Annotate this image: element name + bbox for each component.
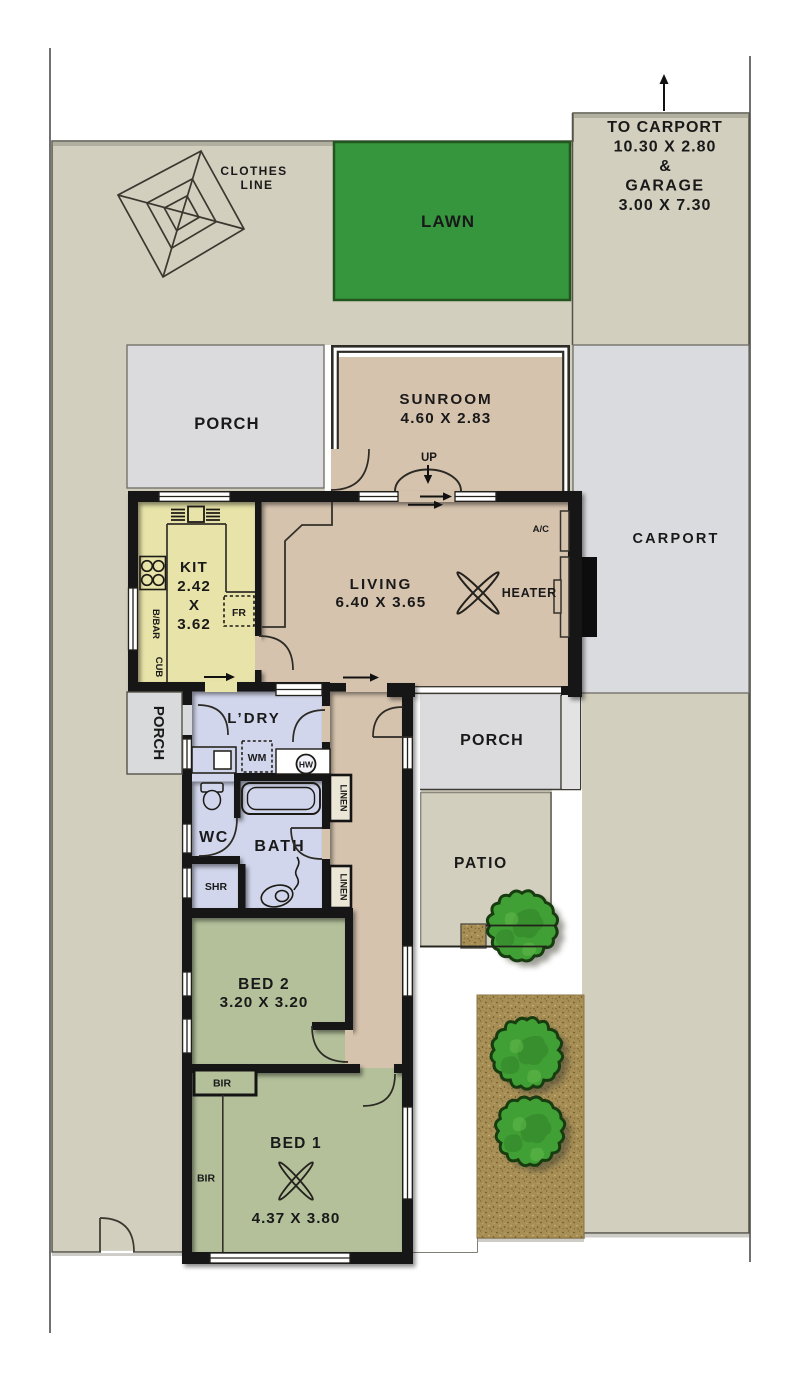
svg-text:PORCH: PORCH: [150, 706, 167, 760]
svg-text:BED 2: BED 2: [238, 976, 290, 993]
svg-text:LINEN: LINEN: [339, 874, 349, 901]
svg-text:SHR: SHR: [205, 881, 228, 893]
svg-text:BIR: BIR: [197, 1173, 216, 1185]
svg-text:WC: WC: [199, 829, 229, 846]
svg-text:3.62: 3.62: [177, 616, 211, 633]
svg-text:4.37 X 3.80: 4.37 X 3.80: [252, 1210, 341, 1227]
svg-text:10.30 X 2.80: 10.30 X 2.80: [614, 139, 717, 156]
svg-text:&: &: [659, 158, 671, 175]
svg-text:BED 1: BED 1: [270, 1135, 322, 1152]
svg-text:LINEN: LINEN: [339, 785, 349, 812]
svg-text:GARAGE: GARAGE: [625, 178, 704, 195]
svg-text:3.20 X 3.20: 3.20 X 3.20: [220, 994, 309, 1011]
svg-text:BATH: BATH: [254, 838, 305, 855]
svg-text:PATIO: PATIO: [454, 855, 508, 872]
svg-text:CARPORT: CARPORT: [632, 531, 719, 547]
svg-text:HW: HW: [299, 760, 314, 770]
svg-text:BIR: BIR: [213, 1078, 232, 1090]
svg-text:CLOTHES: CLOTHES: [220, 164, 287, 178]
svg-text:PORCH: PORCH: [460, 732, 524, 749]
svg-text:L’DRY: L’DRY: [227, 710, 281, 727]
svg-text:PORCH: PORCH: [194, 415, 260, 433]
svg-text:2.42: 2.42: [177, 578, 211, 595]
svg-text:B/BAR: B/BAR: [150, 609, 161, 639]
svg-text:A/C: A/C: [533, 524, 550, 535]
svg-text:KIT: KIT: [180, 559, 208, 576]
svg-text:TO CARPORT: TO CARPORT: [607, 119, 722, 136]
svg-text:4.60 X 2.83: 4.60 X 2.83: [401, 410, 492, 427]
svg-text:SUNROOM: SUNROOM: [399, 391, 492, 408]
svg-text:LAWN: LAWN: [421, 212, 475, 231]
svg-text:3.00 X 7.30: 3.00 X 7.30: [619, 197, 712, 214]
svg-text:X: X: [189, 597, 199, 614]
svg-text:6.40 X 3.65: 6.40 X 3.65: [336, 594, 427, 611]
svg-text:CUB: CUB: [153, 657, 164, 678]
svg-text:FR: FR: [232, 607, 246, 619]
svg-text:LIVING: LIVING: [350, 576, 413, 593]
svg-text:LINE: LINE: [241, 178, 274, 192]
svg-text:HEATER: HEATER: [502, 586, 557, 600]
svg-text:UP: UP: [421, 452, 437, 464]
svg-text:WM: WM: [248, 752, 267, 764]
